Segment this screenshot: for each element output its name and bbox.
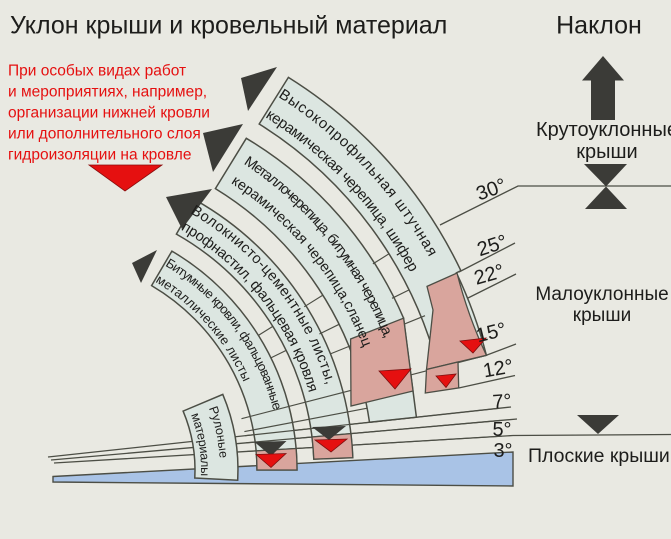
svg-text:Наклон: Наклон: [556, 12, 642, 40]
svg-text:5°: 5°: [492, 419, 511, 441]
svg-text:организации нижней кровли: организации нижней кровли: [8, 105, 210, 122]
svg-text:Малоуклонные: Малоуклонные: [535, 284, 668, 305]
svg-text:Плоские крыши: Плоские крыши: [528, 445, 670, 467]
svg-text:гидроизоляции на кровле: гидроизоляции на кровле: [8, 147, 191, 164]
svg-text:Крутоуклонные: Крутоуклонные: [536, 119, 671, 141]
svg-text:Уклон крыши и кровельный матер: Уклон крыши и кровельный материал: [10, 12, 447, 40]
svg-text:При особых видах работ: При особых видах работ: [8, 63, 186, 80]
svg-text:7°: 7°: [492, 390, 513, 413]
svg-text:или дополнительного слоя: или дополнительного слоя: [8, 126, 201, 143]
svg-text:и мероприятиях, например,: и мероприятиях, например,: [8, 84, 207, 101]
svg-text:крыши: крыши: [576, 141, 637, 163]
svg-text:крыши: крыши: [573, 305, 631, 326]
svg-text:3°: 3°: [493, 440, 512, 462]
